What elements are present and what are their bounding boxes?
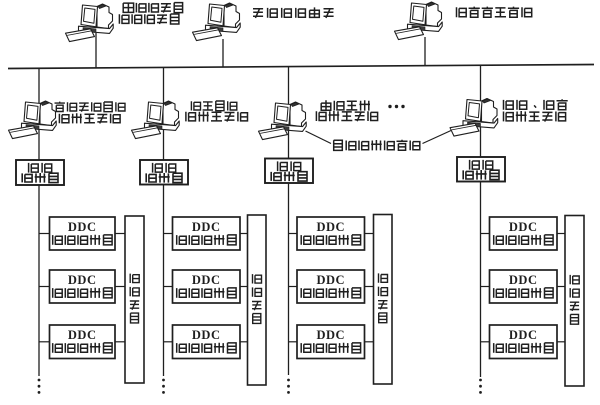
svg-text:DDC: DDC	[317, 273, 346, 287]
svg-text:DDC: DDC	[192, 273, 221, 287]
svg-text:DDC: DDC	[192, 220, 221, 234]
svg-text:DDC: DDC	[509, 273, 538, 287]
svg-text:DDC: DDC	[509, 220, 538, 234]
svg-text:DDC: DDC	[68, 328, 97, 342]
svg-text:DDC: DDC	[317, 220, 346, 234]
svg-text:DDC: DDC	[317, 328, 346, 342]
svg-text:DDC: DDC	[509, 328, 538, 342]
svg-text:DDC: DDC	[68, 220, 97, 234]
svg-text:DDC: DDC	[68, 273, 97, 287]
svg-text:DDC: DDC	[192, 328, 221, 342]
